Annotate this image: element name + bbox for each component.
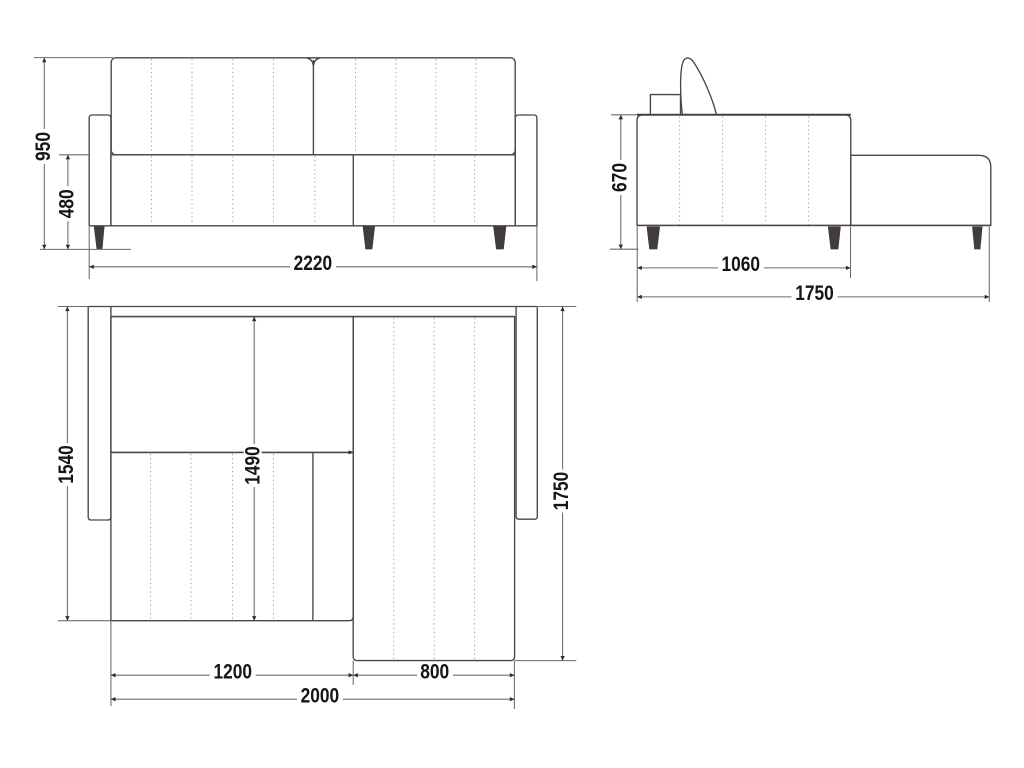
svg-text:800: 800 <box>420 660 449 683</box>
svg-text:1490: 1490 <box>242 446 265 485</box>
svg-text:1060: 1060 <box>722 253 761 276</box>
svg-text:950: 950 <box>32 132 55 161</box>
svg-text:2220: 2220 <box>294 252 333 275</box>
svg-text:2000: 2000 <box>301 684 340 707</box>
svg-text:1200: 1200 <box>213 660 252 683</box>
svg-text:670: 670 <box>608 163 631 192</box>
svg-text:1540: 1540 <box>55 445 78 484</box>
svg-text:1750: 1750 <box>795 282 834 305</box>
svg-text:1750: 1750 <box>550 472 573 511</box>
svg-text:480: 480 <box>55 189 78 218</box>
